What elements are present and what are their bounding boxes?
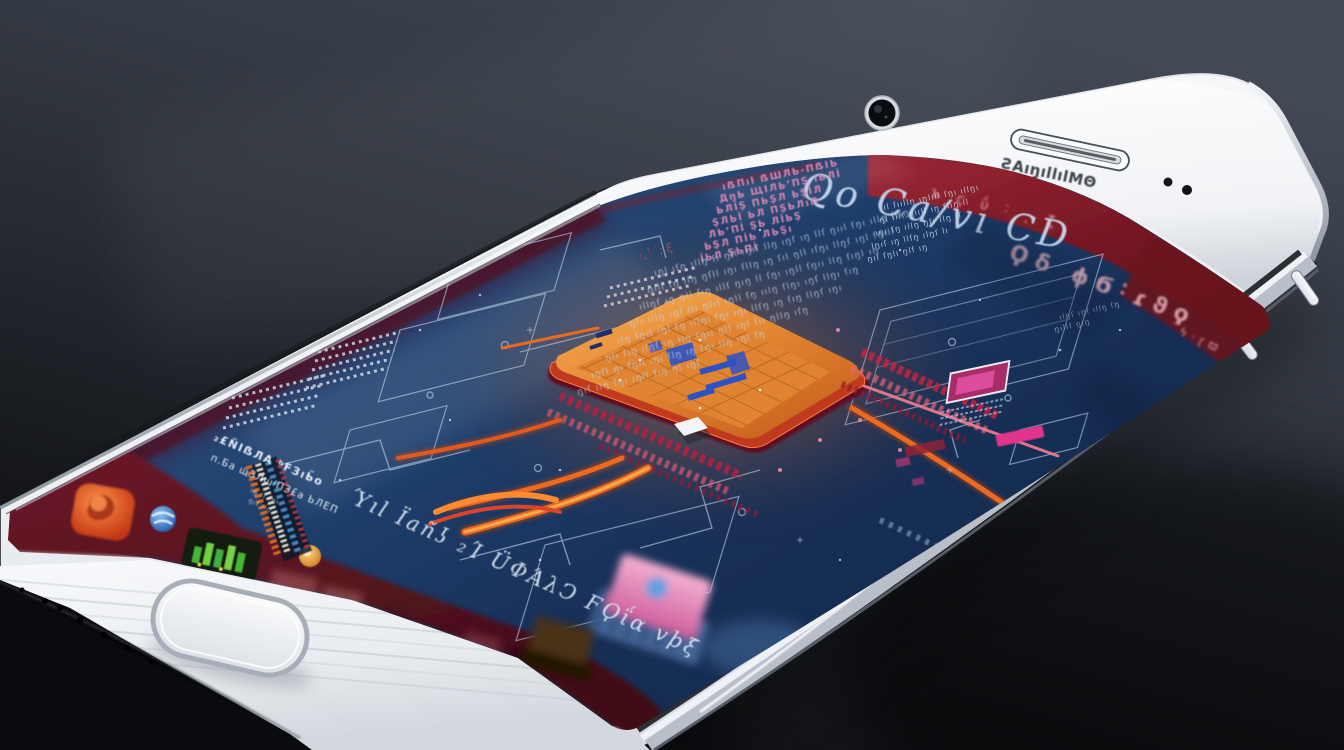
app-icon-red[interactable]: [69, 481, 137, 543]
front-camera: [865, 96, 899, 130]
photo-scene: ƧAıŋıllılMΘ: [0, 0, 1344, 750]
app-icon-browser[interactable]: [150, 506, 176, 532]
